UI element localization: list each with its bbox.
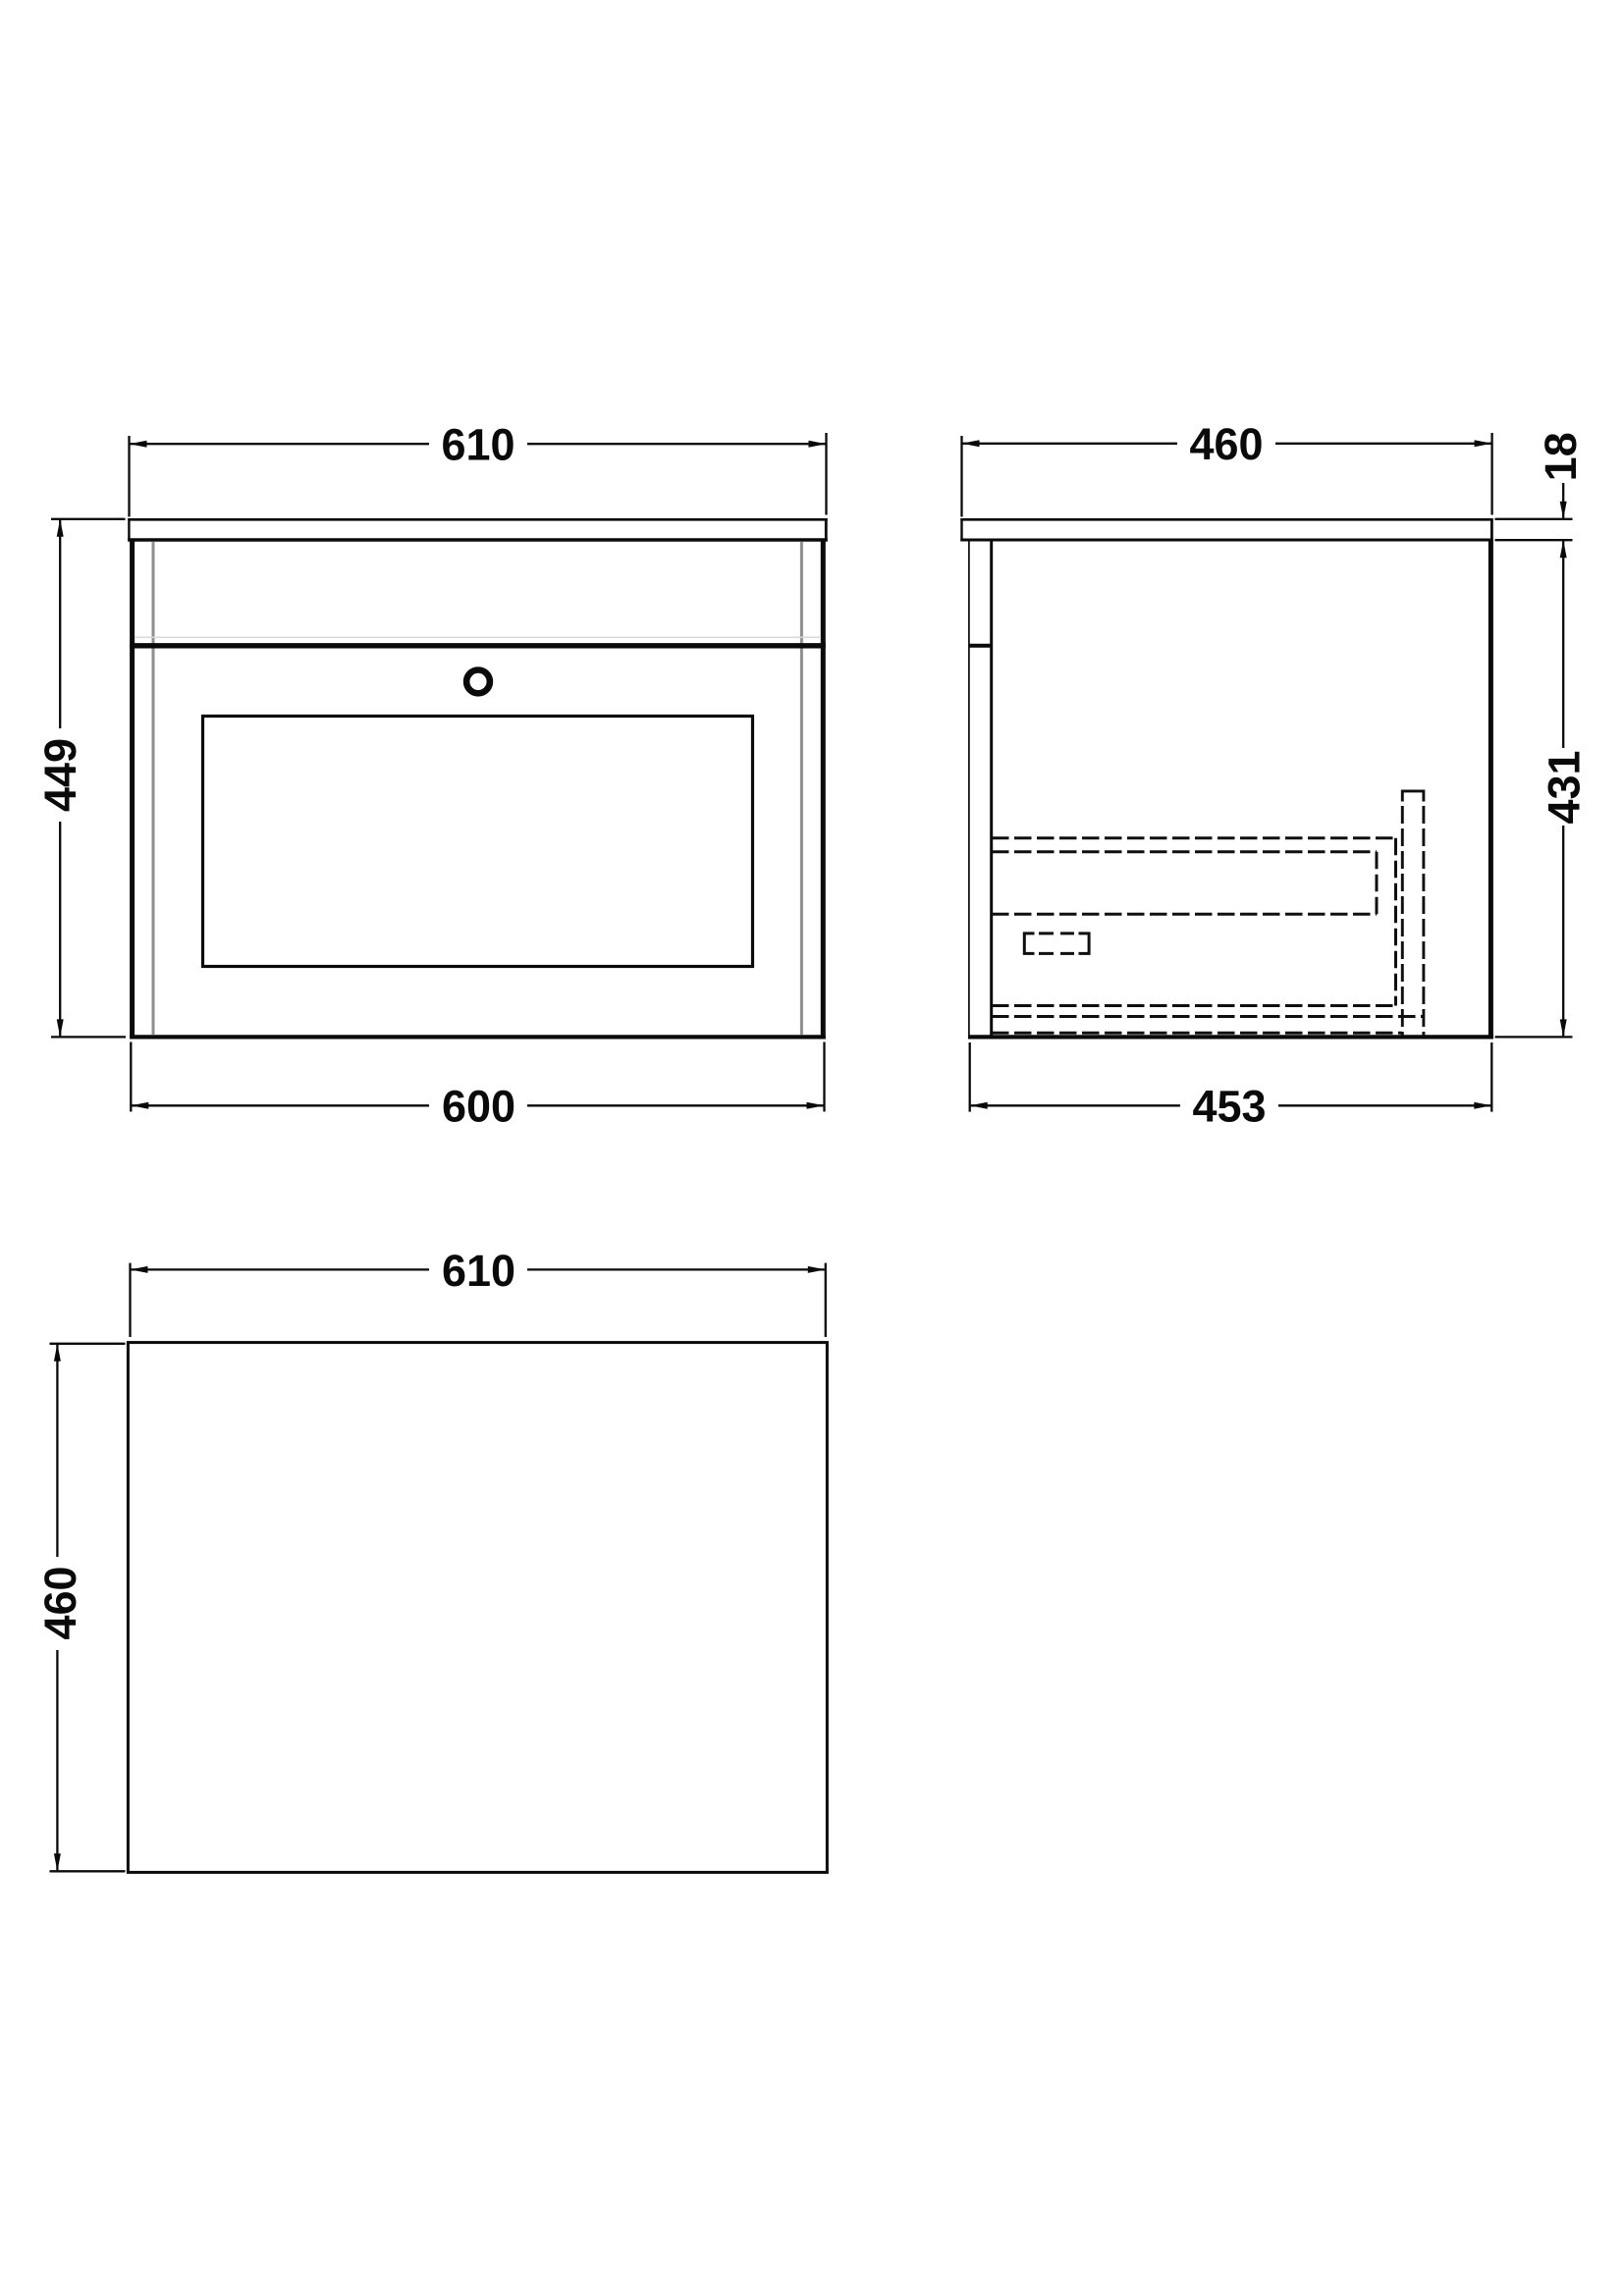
svg-text:600: 600 xyxy=(442,1082,515,1132)
svg-text:460: 460 xyxy=(1189,419,1263,469)
svg-text:610: 610 xyxy=(442,1246,515,1296)
svg-text:610: 610 xyxy=(441,420,514,470)
svg-text:453: 453 xyxy=(1192,1082,1266,1132)
svg-text:449: 449 xyxy=(35,738,85,812)
svg-text:431: 431 xyxy=(1540,750,1590,824)
svg-text:460: 460 xyxy=(35,1566,85,1639)
svg-text:18: 18 xyxy=(1536,432,1586,481)
